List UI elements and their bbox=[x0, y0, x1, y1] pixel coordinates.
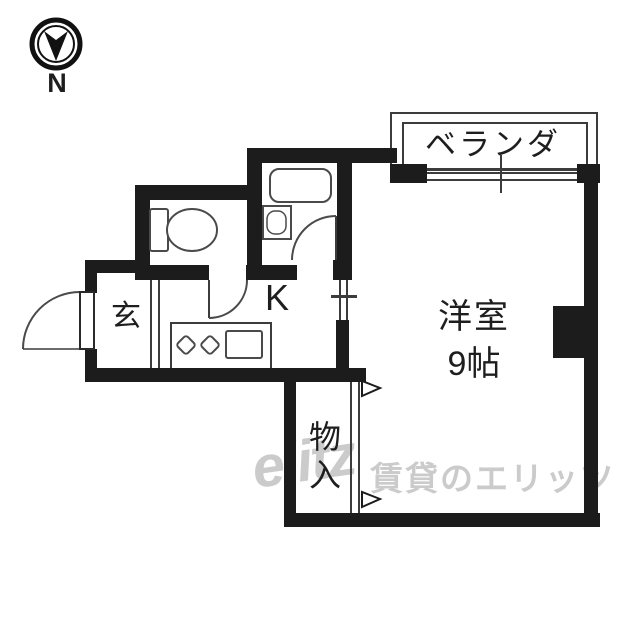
closet-direction-triangle bbox=[362, 492, 380, 507]
toilet-door-swing bbox=[209, 280, 247, 318]
western-room-name: 洋室 bbox=[418, 300, 530, 334]
closet-label-top: 物 bbox=[306, 421, 344, 453]
kitchen-label: K bbox=[257, 280, 297, 316]
washbasin-icon bbox=[263, 206, 291, 239]
entrance-label: 玄 bbox=[108, 302, 144, 332]
entrance-door-leaf bbox=[80, 292, 94, 349]
north-label: N bbox=[42, 70, 72, 97]
entrance-door-swing bbox=[23, 292, 94, 349]
western-room-size: 9帖 bbox=[418, 347, 530, 381]
closet-label-bottom: 入 bbox=[306, 459, 344, 491]
bathroom-door-swing bbox=[292, 216, 336, 260]
stove-burner-icon bbox=[176, 335, 220, 355]
balcony-label: ベランダ bbox=[402, 129, 584, 160]
kitchen-sink-icon bbox=[226, 331, 262, 358]
bathtub-icon bbox=[270, 169, 331, 202]
north-compass-icon bbox=[32, 20, 80, 68]
toilet-icon bbox=[150, 209, 217, 251]
closet-direction-triangle bbox=[362, 381, 380, 396]
fixtures-layer bbox=[0, 0, 640, 640]
floorplan: elitz 賃貸のエリッツ bbox=[0, 0, 640, 640]
